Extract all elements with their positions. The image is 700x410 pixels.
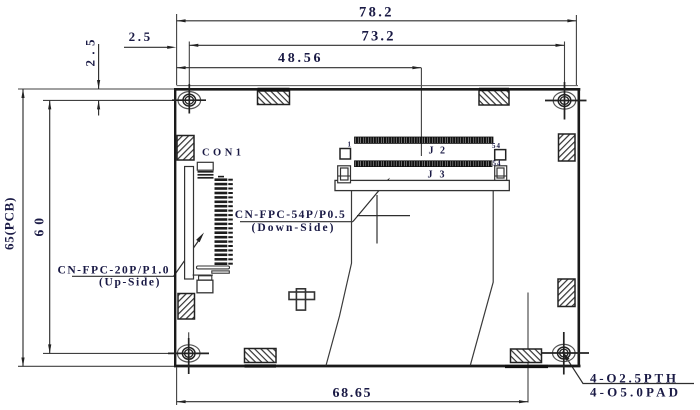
svg-text:2.5: 2.5 <box>83 39 98 67</box>
svg-text:65(PCB): 65(PCB) <box>2 198 17 251</box>
svg-text:J3: J3 <box>428 170 445 181</box>
svg-text:54: 54 <box>492 142 501 150</box>
svg-text:2.5: 2.5 <box>129 29 151 44</box>
svg-text:1: 1 <box>348 141 352 149</box>
svg-text:60: 60 <box>32 218 47 237</box>
svg-text:CN-FPC-20P/P1.0: CN-FPC-20P/P1.0 <box>58 265 169 277</box>
svg-text:CON1: CON1 <box>202 147 241 158</box>
svg-text:(Up-Side): (Up-Side) <box>99 277 160 289</box>
svg-text:54: 54 <box>493 160 502 168</box>
svg-text:48.56: 48.56 <box>278 51 321 66</box>
svg-text:78.2: 78.2 <box>359 5 392 21</box>
svg-text:73.2: 73.2 <box>362 29 394 45</box>
svg-text:CN-FPC-54P/P0.5: CN-FPC-54P/P0.5 <box>235 209 345 221</box>
svg-text:(Down-Side): (Down-Side) <box>252 222 334 234</box>
svg-text:68.65: 68.65 <box>333 386 371 401</box>
svg-text:J2: J2 <box>429 146 446 157</box>
svg-text:4-O5.0PAD: 4-O5.0PAD <box>590 385 678 400</box>
